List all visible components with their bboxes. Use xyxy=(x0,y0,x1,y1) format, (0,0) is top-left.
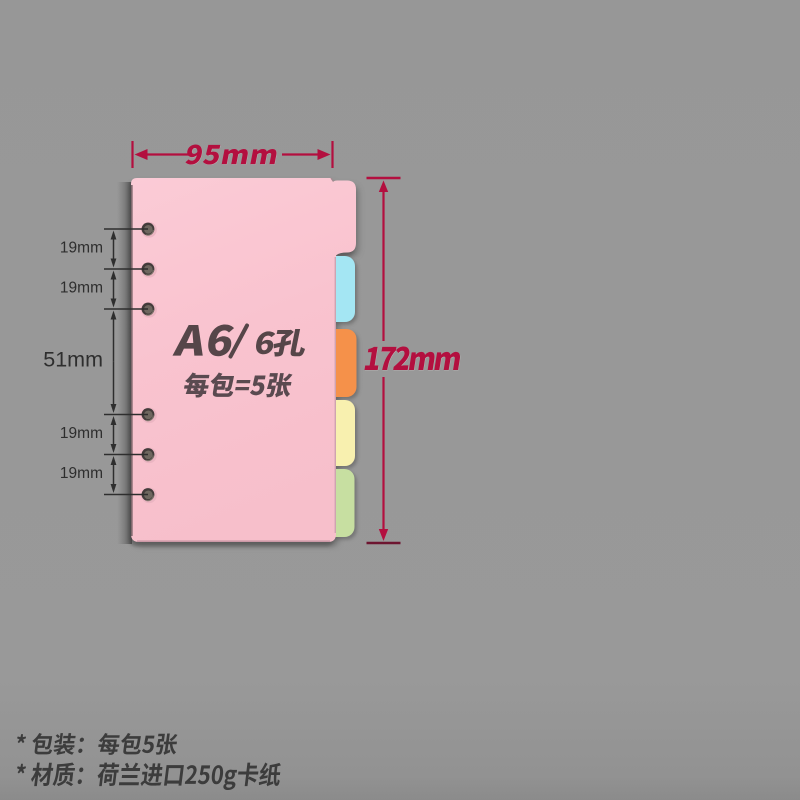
svg-text:51mm: 51mm xyxy=(43,348,103,372)
svg-text:19mm: 19mm xyxy=(60,279,103,296)
svg-text:19mm: 19mm xyxy=(60,239,103,256)
svg-text:19mm: 19mm xyxy=(60,465,103,482)
svg-text:19mm: 19mm xyxy=(60,425,103,442)
